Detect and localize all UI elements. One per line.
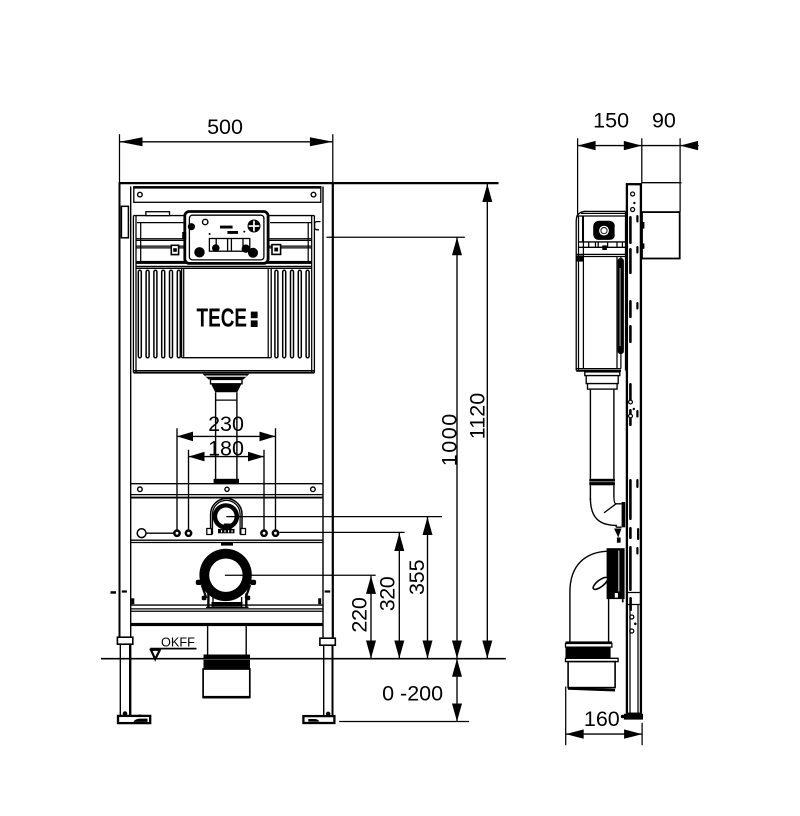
svg-text:TECE: TECE <box>197 305 248 333</box>
svg-text:90: 90 <box>652 109 676 133</box>
svg-text:500: 500 <box>207 115 243 139</box>
svg-text:OKFF: OKFF <box>161 635 195 649</box>
svg-text:220: 220 <box>347 597 371 633</box>
svg-text:355: 355 <box>405 559 429 595</box>
svg-text:1120: 1120 <box>466 393 490 440</box>
svg-text:320: 320 <box>375 576 399 611</box>
svg-text:0 -200: 0 -200 <box>382 681 443 705</box>
svg-text:150: 150 <box>593 109 629 133</box>
svg-text:180: 180 <box>208 436 244 460</box>
svg-text:230: 230 <box>208 412 244 436</box>
svg-text:160: 160 <box>584 707 620 731</box>
svg-text:1000: 1000 <box>437 414 461 467</box>
